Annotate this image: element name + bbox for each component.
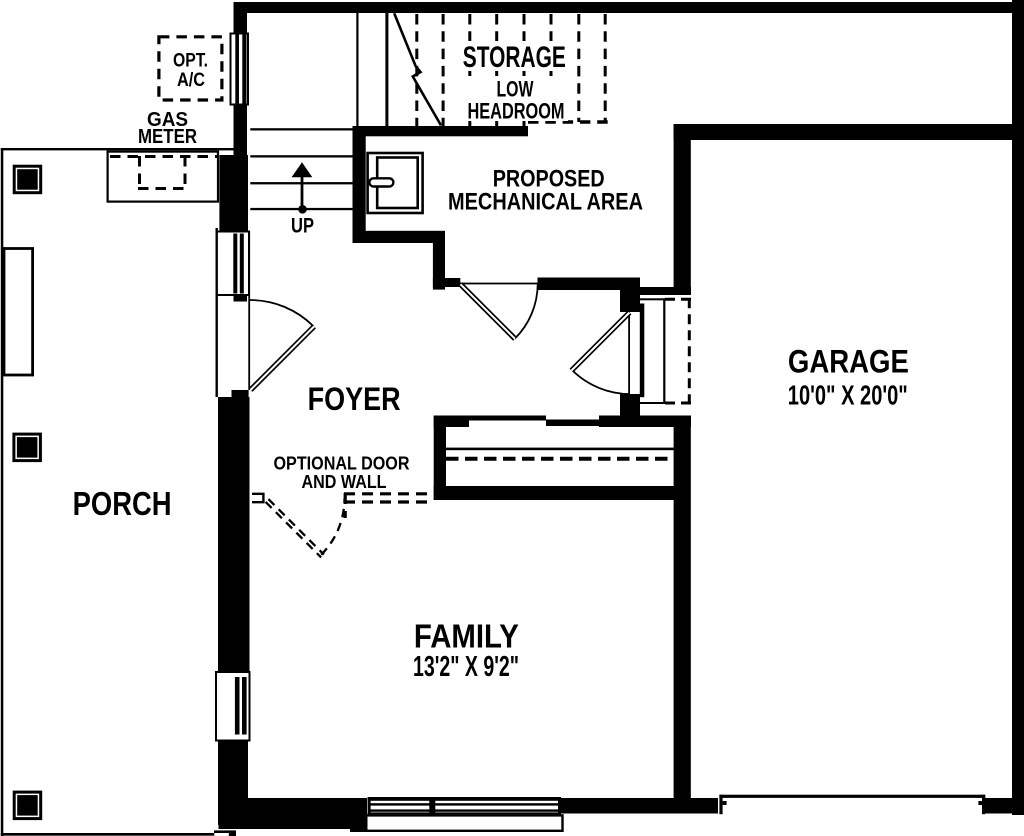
svg-text:MECHANICAL AREA: MECHANICAL AREA: [448, 189, 643, 216]
svg-text:13'2" X 9'2": 13'2" X 9'2": [413, 651, 519, 683]
svg-text:OPTIONAL DOOR: OPTIONAL DOOR: [274, 454, 410, 474]
svg-text:METER: METER: [138, 125, 197, 148]
svg-text:HEADROOM: HEADROOM: [468, 98, 565, 123]
svg-text:GARAGE: GARAGE: [788, 344, 909, 380]
svg-text:10'0" X 20'0": 10'0" X 20'0": [788, 379, 908, 410]
svg-text:PORCH: PORCH: [73, 485, 172, 522]
svg-text:OPT.: OPT.: [173, 50, 208, 71]
svg-text:AND WALL: AND WALL: [302, 472, 387, 492]
svg-text:FOYER: FOYER: [308, 381, 401, 417]
svg-text:STORAGE: STORAGE: [463, 41, 566, 74]
svg-text:UP: UP: [291, 214, 314, 238]
svg-text:A/C: A/C: [177, 70, 205, 91]
